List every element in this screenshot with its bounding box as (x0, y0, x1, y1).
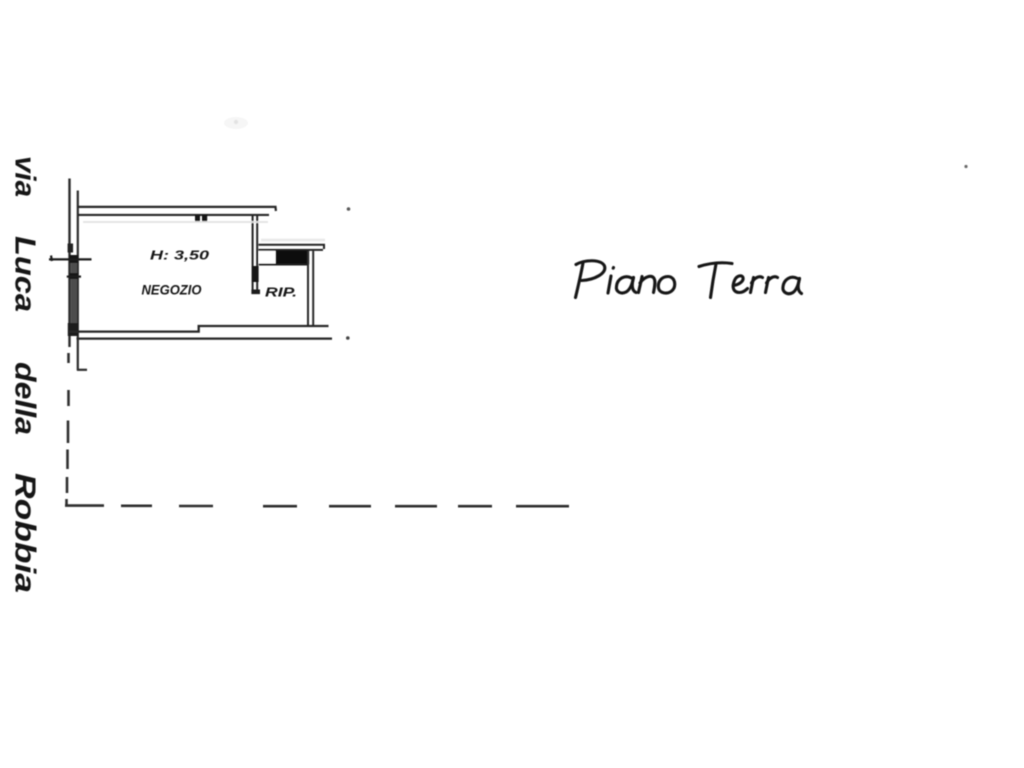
svg-text:RIP.: RIP. (265, 285, 297, 300)
svg-text:della: della (9, 362, 41, 435)
svg-text:NEGOZIO: NEGOZIO (142, 283, 202, 298)
svg-text:H: 3,50: H: 3,50 (150, 248, 210, 263)
svg-text:Robbia: Robbia (9, 473, 41, 593)
svg-text:via: via (9, 156, 41, 197)
svg-text:Luca: Luca (9, 236, 41, 312)
